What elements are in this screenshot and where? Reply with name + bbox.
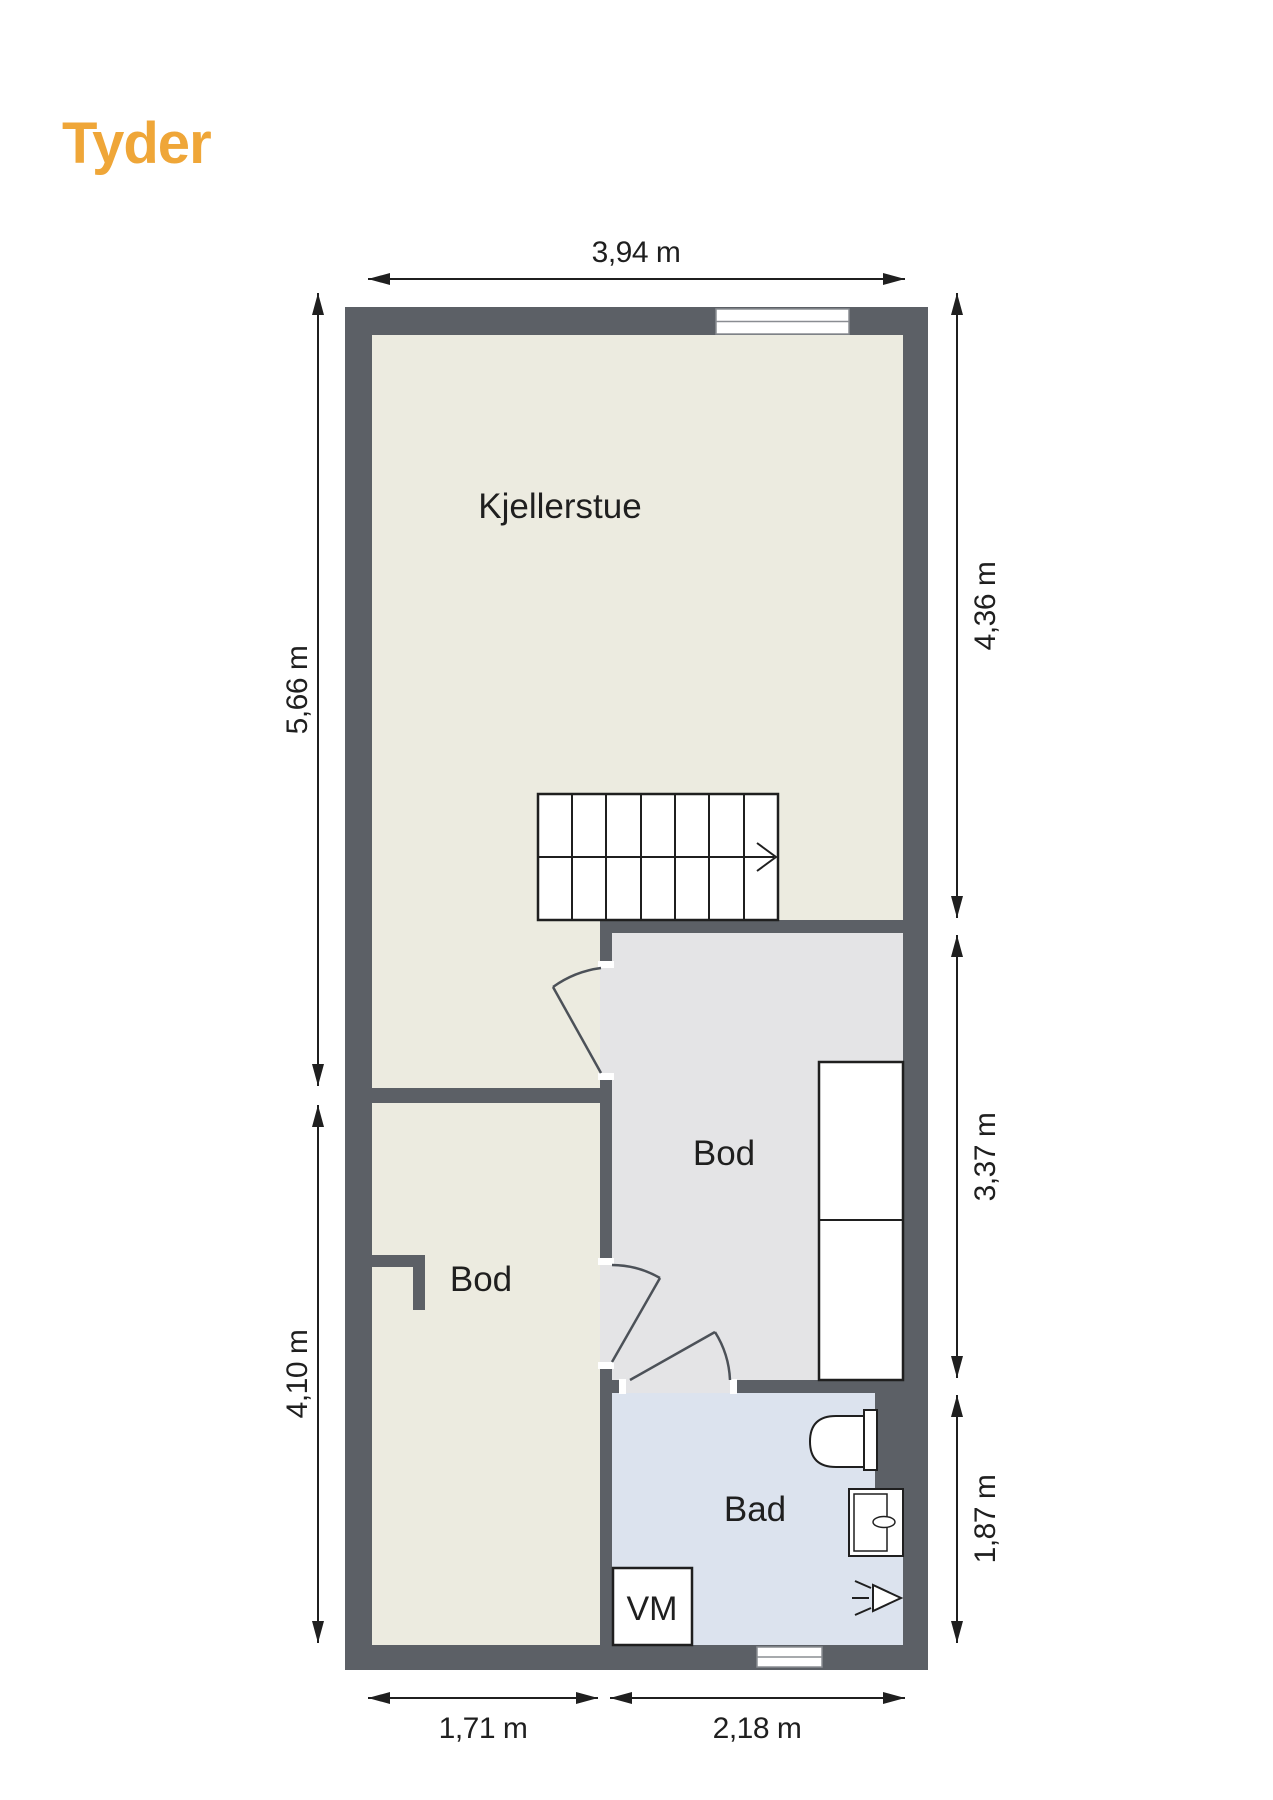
window-bottom-icon xyxy=(757,1647,822,1667)
wall-bottom xyxy=(345,1645,928,1670)
washing-machine-label: VM xyxy=(627,1590,678,1628)
wall-bad-top xyxy=(730,1380,903,1393)
wall-under-stairs xyxy=(600,920,903,933)
dimension-label: 4,36 m xyxy=(969,562,1002,651)
wall-left xyxy=(345,307,372,1670)
room-label-bod-left: Bod xyxy=(450,1260,512,1299)
dimension-bottom-right: 2,18 m xyxy=(610,1698,905,1745)
dimension-right-upper: 4,36 m xyxy=(957,293,1002,918)
dimension-label: 4,10 m xyxy=(281,1330,314,1419)
dimension-label: 1,71 m xyxy=(439,1712,528,1745)
stairs-icon xyxy=(538,794,778,920)
dimension-label: 3,37 m xyxy=(969,1113,1002,1202)
room-label-bad: Bad xyxy=(724,1490,786,1529)
dimension-right-lower: 1,87 m xyxy=(957,1395,1002,1643)
dimension-label: 3,94 m xyxy=(592,236,681,269)
door-jamb xyxy=(619,1379,626,1394)
page: Tyder xyxy=(0,0,1273,1800)
brand-logo: Tyder xyxy=(62,111,211,176)
door-jamb xyxy=(598,1362,614,1369)
wall-stub-vertical xyxy=(413,1255,425,1310)
wall-bod-left-top xyxy=(372,1088,612,1103)
wall-stub-horizontal xyxy=(372,1255,413,1267)
floorplan: Tyder xyxy=(0,0,1273,1800)
window-top-icon xyxy=(716,309,849,334)
door-jamb xyxy=(598,1073,614,1080)
dimension-label: 5,66 m xyxy=(281,646,314,735)
dimension-left-upper: 5,66 m xyxy=(281,293,318,1086)
dimension-bottom-left: 1,71 m xyxy=(368,1698,598,1745)
wall-center-lower xyxy=(600,1362,612,1645)
dimension-label: 1,87 m xyxy=(969,1475,1002,1564)
washing-machine: VM xyxy=(613,1568,692,1645)
door-jamb xyxy=(598,1258,614,1265)
wall-right xyxy=(903,307,928,1670)
closet-icon xyxy=(819,1062,903,1380)
sink-icon xyxy=(849,1489,903,1556)
dimension-left-lower: 4,10 m xyxy=(281,1105,318,1643)
toilet-icon xyxy=(810,1410,877,1470)
dimension-top: 3,94 m xyxy=(368,236,905,279)
room-label-bod-right: Bod xyxy=(693,1134,755,1173)
door-jamb xyxy=(730,1379,737,1394)
dimension-label: 2,18 m xyxy=(713,1712,802,1745)
room-label-kjellerstue: Kjellerstue xyxy=(478,487,641,526)
dimension-right-middle: 3,37 m xyxy=(957,935,1002,1378)
wall-toilet-chase xyxy=(875,1393,903,1489)
